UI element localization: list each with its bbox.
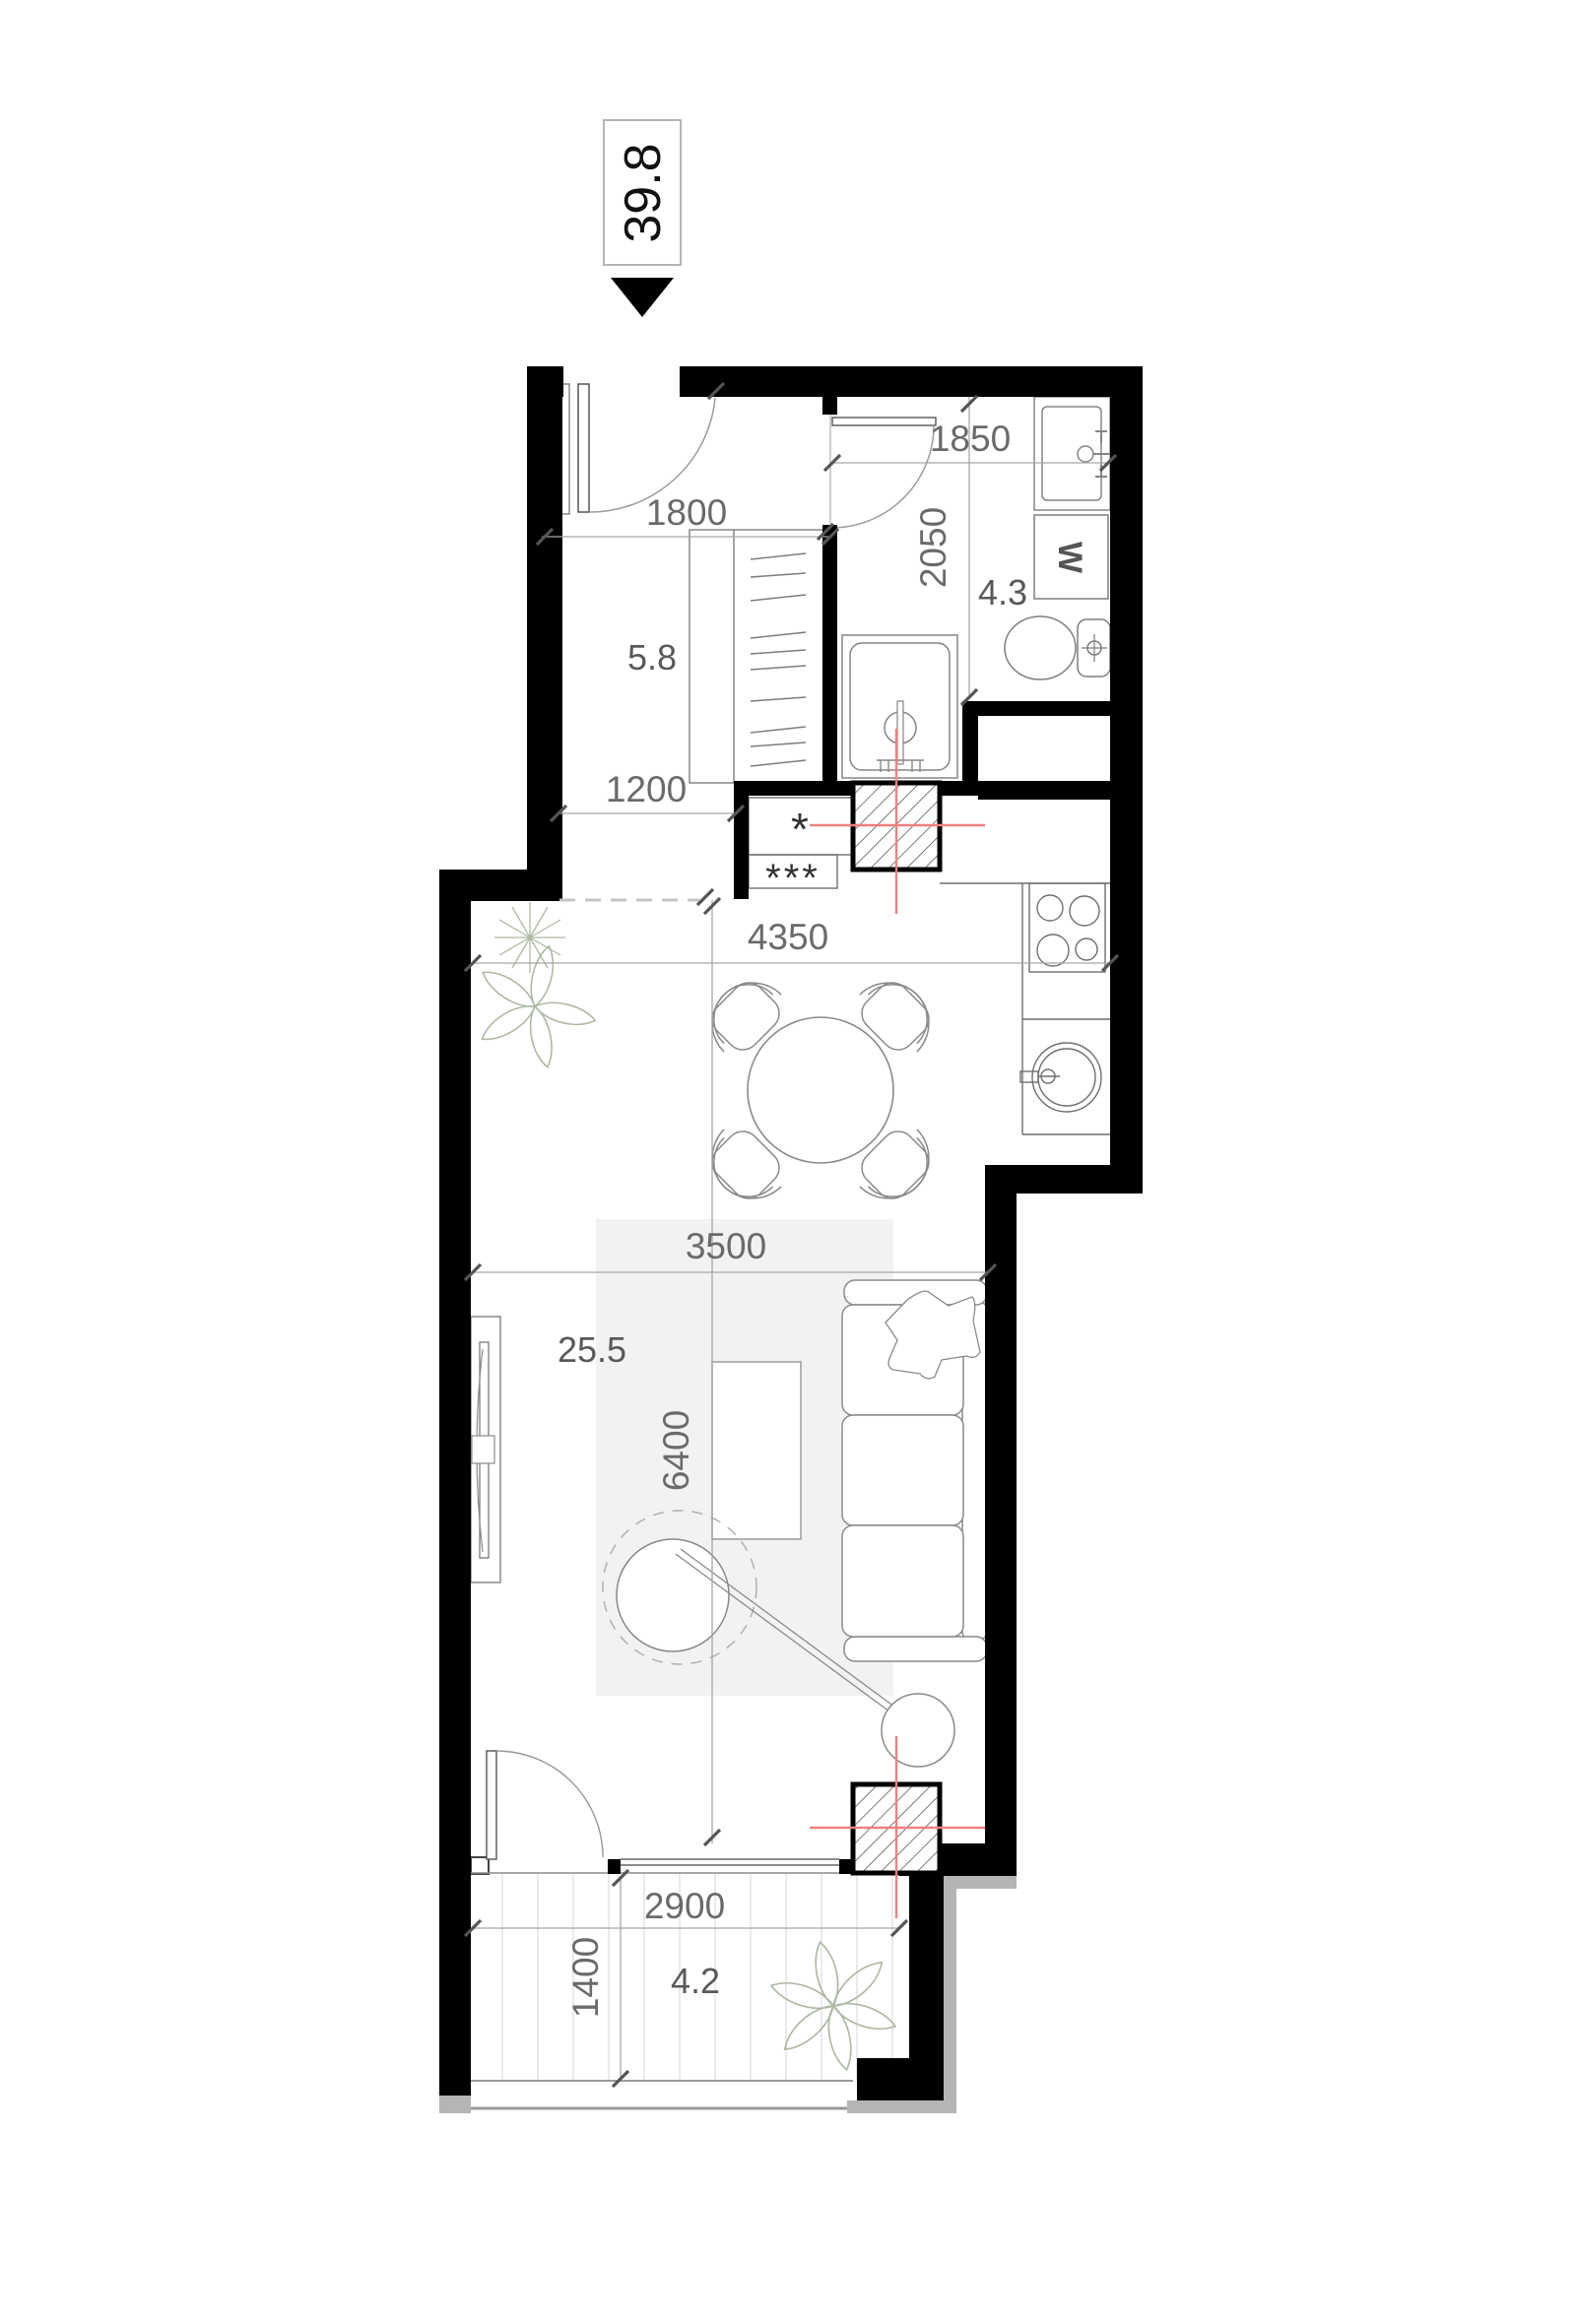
burner-icon — [1037, 935, 1069, 966]
burner-icon — [1037, 895, 1063, 921]
lamp-shade — [882, 1694, 954, 1767]
dimension-label-bath-width: 1850 — [930, 419, 1011, 459]
door-leaf — [578, 384, 589, 512]
door-leaf — [832, 418, 936, 425]
room-area-balcony: 4.2 — [671, 1961, 720, 2001]
wall-segment — [822, 397, 837, 415]
burner-icon — [1076, 938, 1097, 960]
dimension-label-bath-depth: 2050 — [913, 507, 953, 588]
window-jamb — [608, 1859, 621, 1874]
dimension-label-kitchen-width: 4350 — [748, 917, 828, 957]
kitchen-sink — [1020, 1043, 1101, 1112]
sofa-seat — [842, 1415, 963, 1525]
unit-area-label: 39.8 — [615, 143, 672, 242]
dining-table — [748, 1017, 893, 1163]
wall-segment — [527, 397, 562, 901]
washing-machine: W — [1034, 515, 1108, 599]
wall-segment — [439, 901, 471, 2096]
wall-segment — [978, 781, 1110, 800]
dimension-label-balcony-width: 2900 — [644, 1886, 725, 1926]
wall-segment — [909, 1876, 944, 2058]
dimension-label-living-depth: 6400 — [656, 1410, 696, 1491]
wall-segment — [680, 366, 1143, 397]
dimension-label-living-width: 3500 — [686, 1226, 766, 1266]
room-area-bathroom: 4.3 — [978, 572, 1027, 613]
tv-console — [471, 1317, 500, 1582]
balcony-door — [471, 1751, 603, 1874]
shower — [842, 635, 957, 778]
sofa-seat — [842, 1525, 963, 1637]
kitchen-symbol-triple: *** — [765, 857, 821, 900]
wall-segment — [985, 1165, 1143, 1194]
dimension-label-hall-passage: 1200 — [606, 769, 687, 809]
washing-machine-label: W — [1051, 542, 1088, 574]
plant-living — [477, 902, 597, 1069]
wardrobe — [689, 530, 824, 783]
entrance-arrow-icon — [611, 278, 674, 317]
unit-area-flag: 39.8 — [604, 120, 681, 317]
dimension-label-balcony-depth: 1400 — [565, 1937, 606, 2018]
coffee-table — [712, 1362, 801, 1539]
floor-plan: W * *** — [0, 0, 1576, 2324]
wall-segment — [1110, 397, 1143, 1194]
door-frame — [561, 384, 569, 514]
door-jamb — [471, 1857, 489, 1874]
wall-segment — [962, 701, 978, 796]
door-swing-arc — [496, 1751, 603, 1857]
wall-segment — [985, 1194, 1017, 1843]
wall-segment — [857, 2058, 944, 2100]
stove — [1029, 883, 1105, 972]
floor-plan-canvas: W * *** — [0, 0, 1576, 2324]
room-area-hall: 5.8 — [627, 637, 677, 678]
room-area-living: 25.5 — [558, 1329, 626, 1370]
wall-segment — [968, 701, 1110, 716]
wall-segment — [527, 366, 563, 397]
burner-icon — [1070, 896, 1099, 926]
sofa — [842, 1280, 987, 1661]
kitchen-symbol-single: * — [791, 804, 809, 855]
wall-segment — [439, 870, 558, 901]
toilet — [1005, 616, 1110, 679]
dimension-label-entry-width: 1800 — [646, 492, 727, 533]
sofa-armrest — [844, 1637, 987, 1661]
dining-set — [695, 966, 946, 1215]
toilet-bowl — [1005, 616, 1076, 679]
bathroom-vanity — [1034, 397, 1110, 510]
door-leaf — [487, 1751, 496, 1859]
wall-segment — [822, 525, 837, 783]
